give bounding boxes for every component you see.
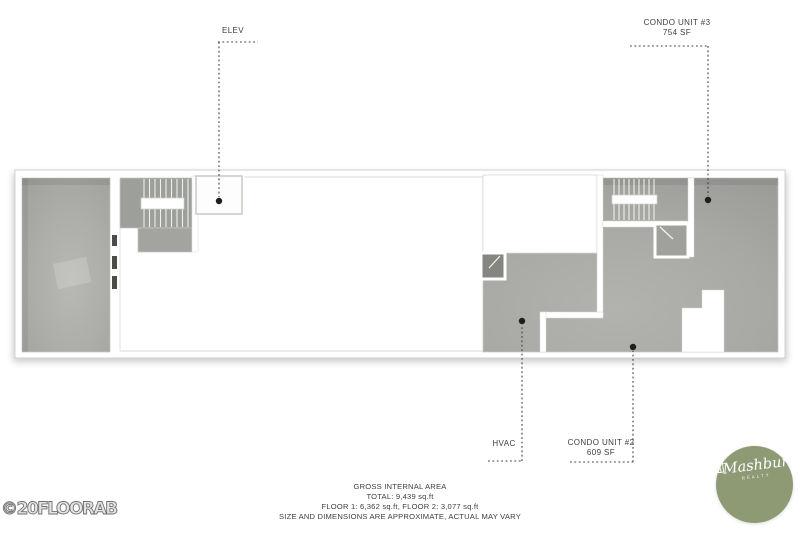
floor-plan-rendering [0, 0, 800, 533]
condo3-area: 754 SF [644, 28, 711, 38]
wall-openings [112, 235, 117, 289]
dark-closet [481, 253, 505, 279]
left-stairwell [120, 178, 192, 228]
condo3-title: CONDO UNIT #3 [644, 18, 711, 28]
house-icon [710, 459, 727, 476]
condo2-area: 609 SF [568, 448, 635, 458]
condo2-title: CONDO UNIT #2 [568, 438, 635, 448]
marker-dot-condo3 [705, 197, 711, 203]
marker-dot-elev [216, 198, 222, 204]
area-summary: GROSS INTERNAL AREA TOTAL: 9,439 sq.ft F… [279, 482, 521, 522]
stair-railing [612, 195, 657, 204]
hvac-label: HVAC [492, 439, 515, 449]
condo2-label: CONDO UNIT #2 609 SF [568, 438, 635, 458]
floorplan-page: ELEV CONDO UNIT #3 754 SF HVAC CONDO UNI… [0, 0, 800, 533]
brokerage-logo-badge: theMashburn REALTY [716, 446, 793, 523]
marker-dot-condo2 [630, 344, 636, 350]
copyright-watermark: ©20FLOORAB [1, 499, 117, 519]
open-void [483, 175, 597, 253]
elevator-label: ELEV [222, 26, 244, 36]
stair-railing [141, 198, 184, 209]
marker-dot-hvac [519, 318, 525, 324]
condo3-label: CONDO UNIT #3 754 SF [644, 18, 711, 38]
left-alcove-floor [138, 228, 192, 252]
area-summary-floors: FLOOR 1: 6,362 sq.ft, FLOOR 2: 3,077 sq.… [279, 502, 521, 512]
area-summary-disclaimer: SIZE AND DIMENSIONS ARE APPROXIMATE, ACT… [279, 512, 521, 522]
elevator-shaft [196, 176, 242, 214]
area-summary-title: GROSS INTERNAL AREA [279, 482, 521, 492]
area-summary-total: TOTAL: 9,439 sq.ft [279, 492, 521, 502]
closet [655, 224, 688, 257]
